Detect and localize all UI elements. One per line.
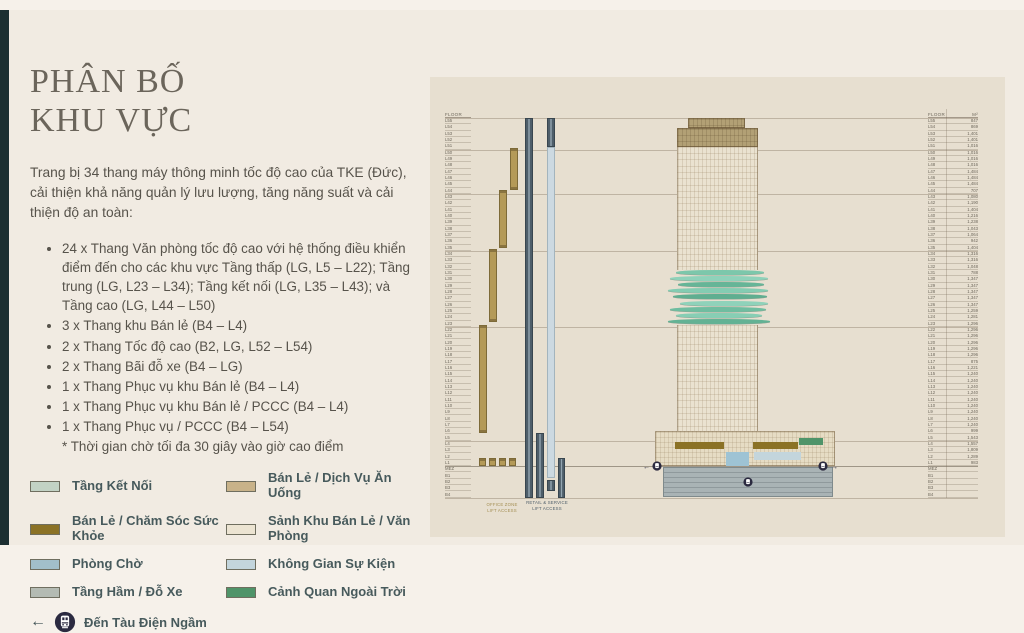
legend-swatch	[30, 559, 60, 570]
footnote: * Thời gian chờ tối đa 30 giây vào giờ c…	[62, 437, 422, 456]
terrace-stripe	[668, 288, 768, 293]
legend-swatch	[30, 524, 60, 535]
service-shaft-full-height	[525, 118, 533, 498]
legend-label: Tầng Kết Nối	[72, 479, 152, 494]
page-title: PHÂN BỐKHU VỰC	[30, 62, 422, 141]
metro-note: ← Đến Tàu Điện Ngầm	[30, 611, 422, 633]
office-lobby-stub	[489, 458, 496, 466]
legend-item: Tầng Hầm / Đỗ Xe	[30, 585, 226, 600]
elevator-list-item: 1 x Thang Phục vụ khu Bán lẻ (B4 – L4)	[62, 377, 422, 396]
shuttle-shaft-basement-stub	[547, 480, 555, 491]
terrace-stripe	[676, 270, 764, 275]
elevator-list: 24 x Thang Văn phòng tốc độ cao với hệ t…	[30, 239, 422, 437]
tower-low-zone	[677, 325, 758, 431]
retail-lift-access-line2: LIFT ACCESS	[523, 506, 571, 512]
office-shaft-low-zone	[479, 325, 487, 433]
legend-swatch	[226, 559, 256, 570]
legend-swatch	[226, 587, 256, 598]
metro-arrow-right: →	[831, 464, 838, 471]
terrace-stripe	[680, 301, 768, 306]
retail-shaft	[536, 433, 544, 498]
legend-swatch	[226, 524, 256, 535]
floor-column-right-header: FLOOR M²	[928, 109, 978, 118]
office-shaft-mid-zone	[489, 249, 497, 322]
retail-lift-access-line1: RETAIL & SERVICE	[523, 500, 571, 506]
floor-header-label: FLOOR	[928, 112, 945, 117]
intro-text: Trang bị 34 thang máy thông minh tốc độ …	[30, 163, 422, 224]
parking-shaft	[558, 458, 565, 498]
shuttle-shaft	[547, 147, 555, 478]
sky-terraces-green	[668, 270, 770, 325]
legend-swatch	[226, 481, 256, 492]
office-lobby-stub	[509, 458, 516, 466]
elevator-list-item: 3 x Thang khu Bán lẻ (B4 – L4)	[62, 316, 422, 335]
terrace-stripe	[670, 276, 768, 281]
legend-label: Sảnh Khu Bán Lẻ / Văn Phòng	[268, 514, 422, 544]
floor-area-row: B4	[928, 491, 978, 497]
elevator-list-item: 1 x Thang Phục vụ / PCCC (B4 – L54)	[62, 417, 422, 436]
office-lobby-stub	[499, 458, 506, 466]
terrace-stripe	[678, 282, 764, 287]
section-diagram: FLOOR L55L54L53L52L51L50L49L48L47L46L45L…	[430, 77, 1005, 537]
metro-marker-basement	[743, 477, 753, 487]
terrace-stripe	[668, 319, 770, 324]
tower-high-zone	[677, 147, 758, 270]
office-lobby-stub	[479, 458, 486, 466]
podium-retail-band-left	[675, 442, 724, 449]
elevator-list-item: 2 x Thang Tốc độ cao (B2, LG, L52 – L54)	[62, 337, 422, 356]
podium-event-space-right	[754, 452, 801, 460]
metro-label: Đến Tàu Điện Ngầm	[84, 615, 207, 630]
terrace-stripe	[676, 313, 762, 318]
legend-item: Phòng Chờ	[30, 557, 226, 572]
floor-column-left: FLOOR L55L54L53L52L51L50L49L48L47L46L45L…	[445, 109, 471, 498]
office-shaft-high-zone	[510, 148, 518, 190]
floor-row: B4	[445, 491, 471, 497]
metro-arrow-left: ←	[643, 464, 650, 471]
legend-item: Không Gian Sự Kiện	[226, 557, 422, 572]
legend-swatch	[30, 481, 60, 492]
legend-item: Bán Lẻ / Chăm Sóc Sức Khỏe	[30, 514, 226, 544]
legend-label: Bán Lẻ / Dịch Vụ Ăn Uống	[268, 471, 422, 501]
floor-column-right: FLOOR M² L55847L54869L531,401L521,401L51…	[928, 109, 978, 498]
building-section	[430, 77, 1005, 537]
elevator-list-item: 2 x Thang Bãi đỗ xe (B4 – LG)	[62, 357, 422, 376]
metro-marker-right	[818, 461, 828, 471]
tower-crown	[688, 118, 745, 128]
podium-event-space-center	[726, 452, 749, 466]
office-shaft-link-zone	[499, 190, 507, 248]
legend: Tầng Kết NốiBán Lẻ / Dịch Vụ Ăn UốngBán …	[30, 471, 422, 600]
metro-marker-left	[652, 461, 662, 471]
title-line-1: PHÂN BỐ	[30, 63, 185, 100]
podium-landscape-strip	[799, 438, 823, 445]
area-header-label: M²	[945, 112, 978, 117]
legend-item: Tầng Kết Nối	[30, 479, 226, 494]
legend-label: Không Gian Sự Kiện	[268, 557, 395, 572]
legend-label: Bán Lẻ / Chăm Sóc Sức Khỏe	[72, 514, 226, 544]
legend-item: Sảnh Khu Bán Lẻ / Văn Phòng	[226, 514, 422, 544]
elevator-list-item: 1 x Thang Phục vụ khu Bán lẻ / PCCC (B4 …	[62, 397, 422, 416]
legend-item: Bán Lẻ / Dịch Vụ Ăn Uống	[226, 471, 422, 501]
content-column: PHÂN BỐKHU VỰC Trang bị 34 thang máy thô…	[30, 10, 422, 633]
legend-item: Cảnh Quan Ngoài Trời	[226, 585, 422, 600]
legend-swatch	[30, 587, 60, 598]
podium-retail-band-right	[753, 442, 798, 449]
metro-icon	[54, 611, 76, 633]
elevator-list-item: 24 x Thang Văn phòng tốc độ cao với hệ t…	[62, 239, 422, 316]
left-accent-strip	[0, 10, 9, 545]
terrace-stripe	[673, 294, 767, 299]
legend-label: Cảnh Quan Ngoài Trời	[268, 585, 406, 600]
legend-label: Phòng Chờ	[72, 557, 143, 572]
podium	[655, 431, 835, 466]
left-arrow-icon: ←	[30, 614, 46, 630]
retail-lift-access-label: RETAIL & SERVICE LIFT ACCESS	[523, 500, 571, 512]
shuttle-shaft-top-cap	[547, 118, 555, 147]
floor-column-left-header: FLOOR	[445, 109, 471, 118]
terrace-stripe	[670, 307, 766, 312]
legend-label: Tầng Hầm / Đỗ Xe	[72, 585, 183, 600]
tower-top-block-fnb	[677, 128, 758, 147]
title-line-2: KHU VỰC	[30, 102, 192, 139]
